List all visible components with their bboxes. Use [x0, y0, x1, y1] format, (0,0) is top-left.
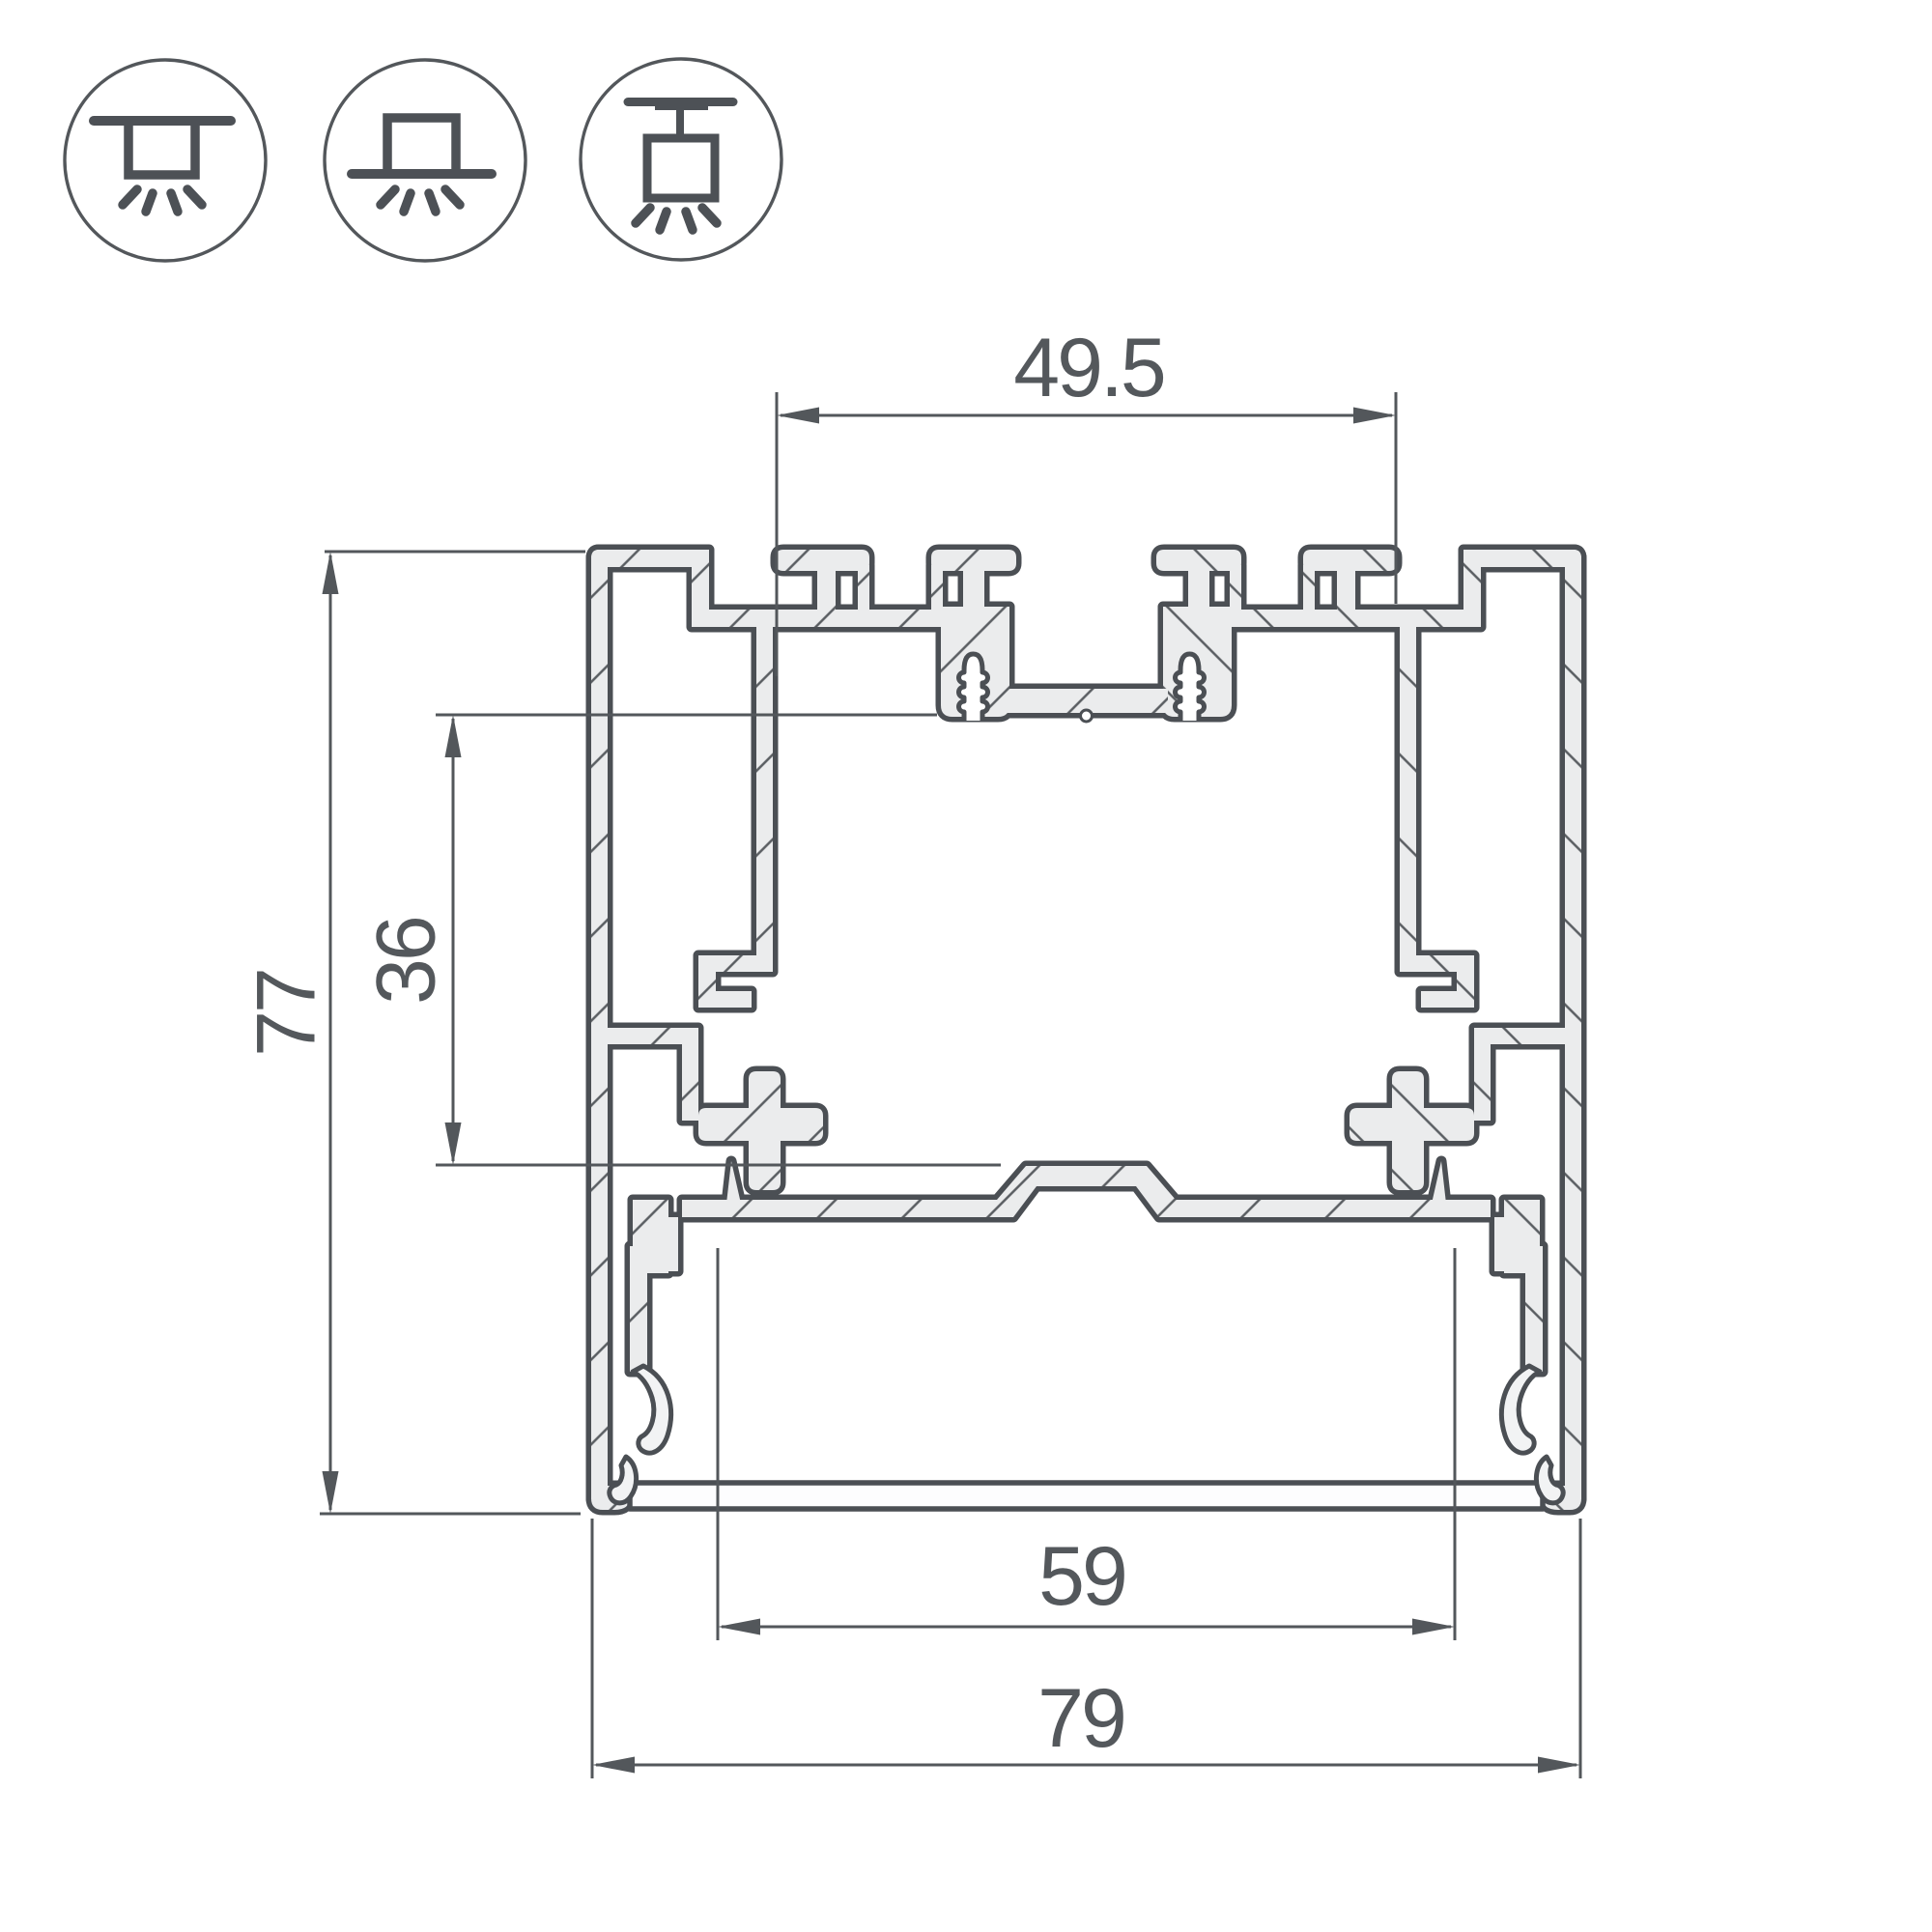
svg-text:49.5: 49.5 — [1013, 322, 1164, 414]
svg-text:79: 79 — [1037, 1672, 1124, 1765]
svg-text:36: 36 — [360, 918, 453, 1005]
svg-text:77: 77 — [241, 970, 333, 1057]
svg-text:59: 59 — [1038, 1530, 1125, 1623]
